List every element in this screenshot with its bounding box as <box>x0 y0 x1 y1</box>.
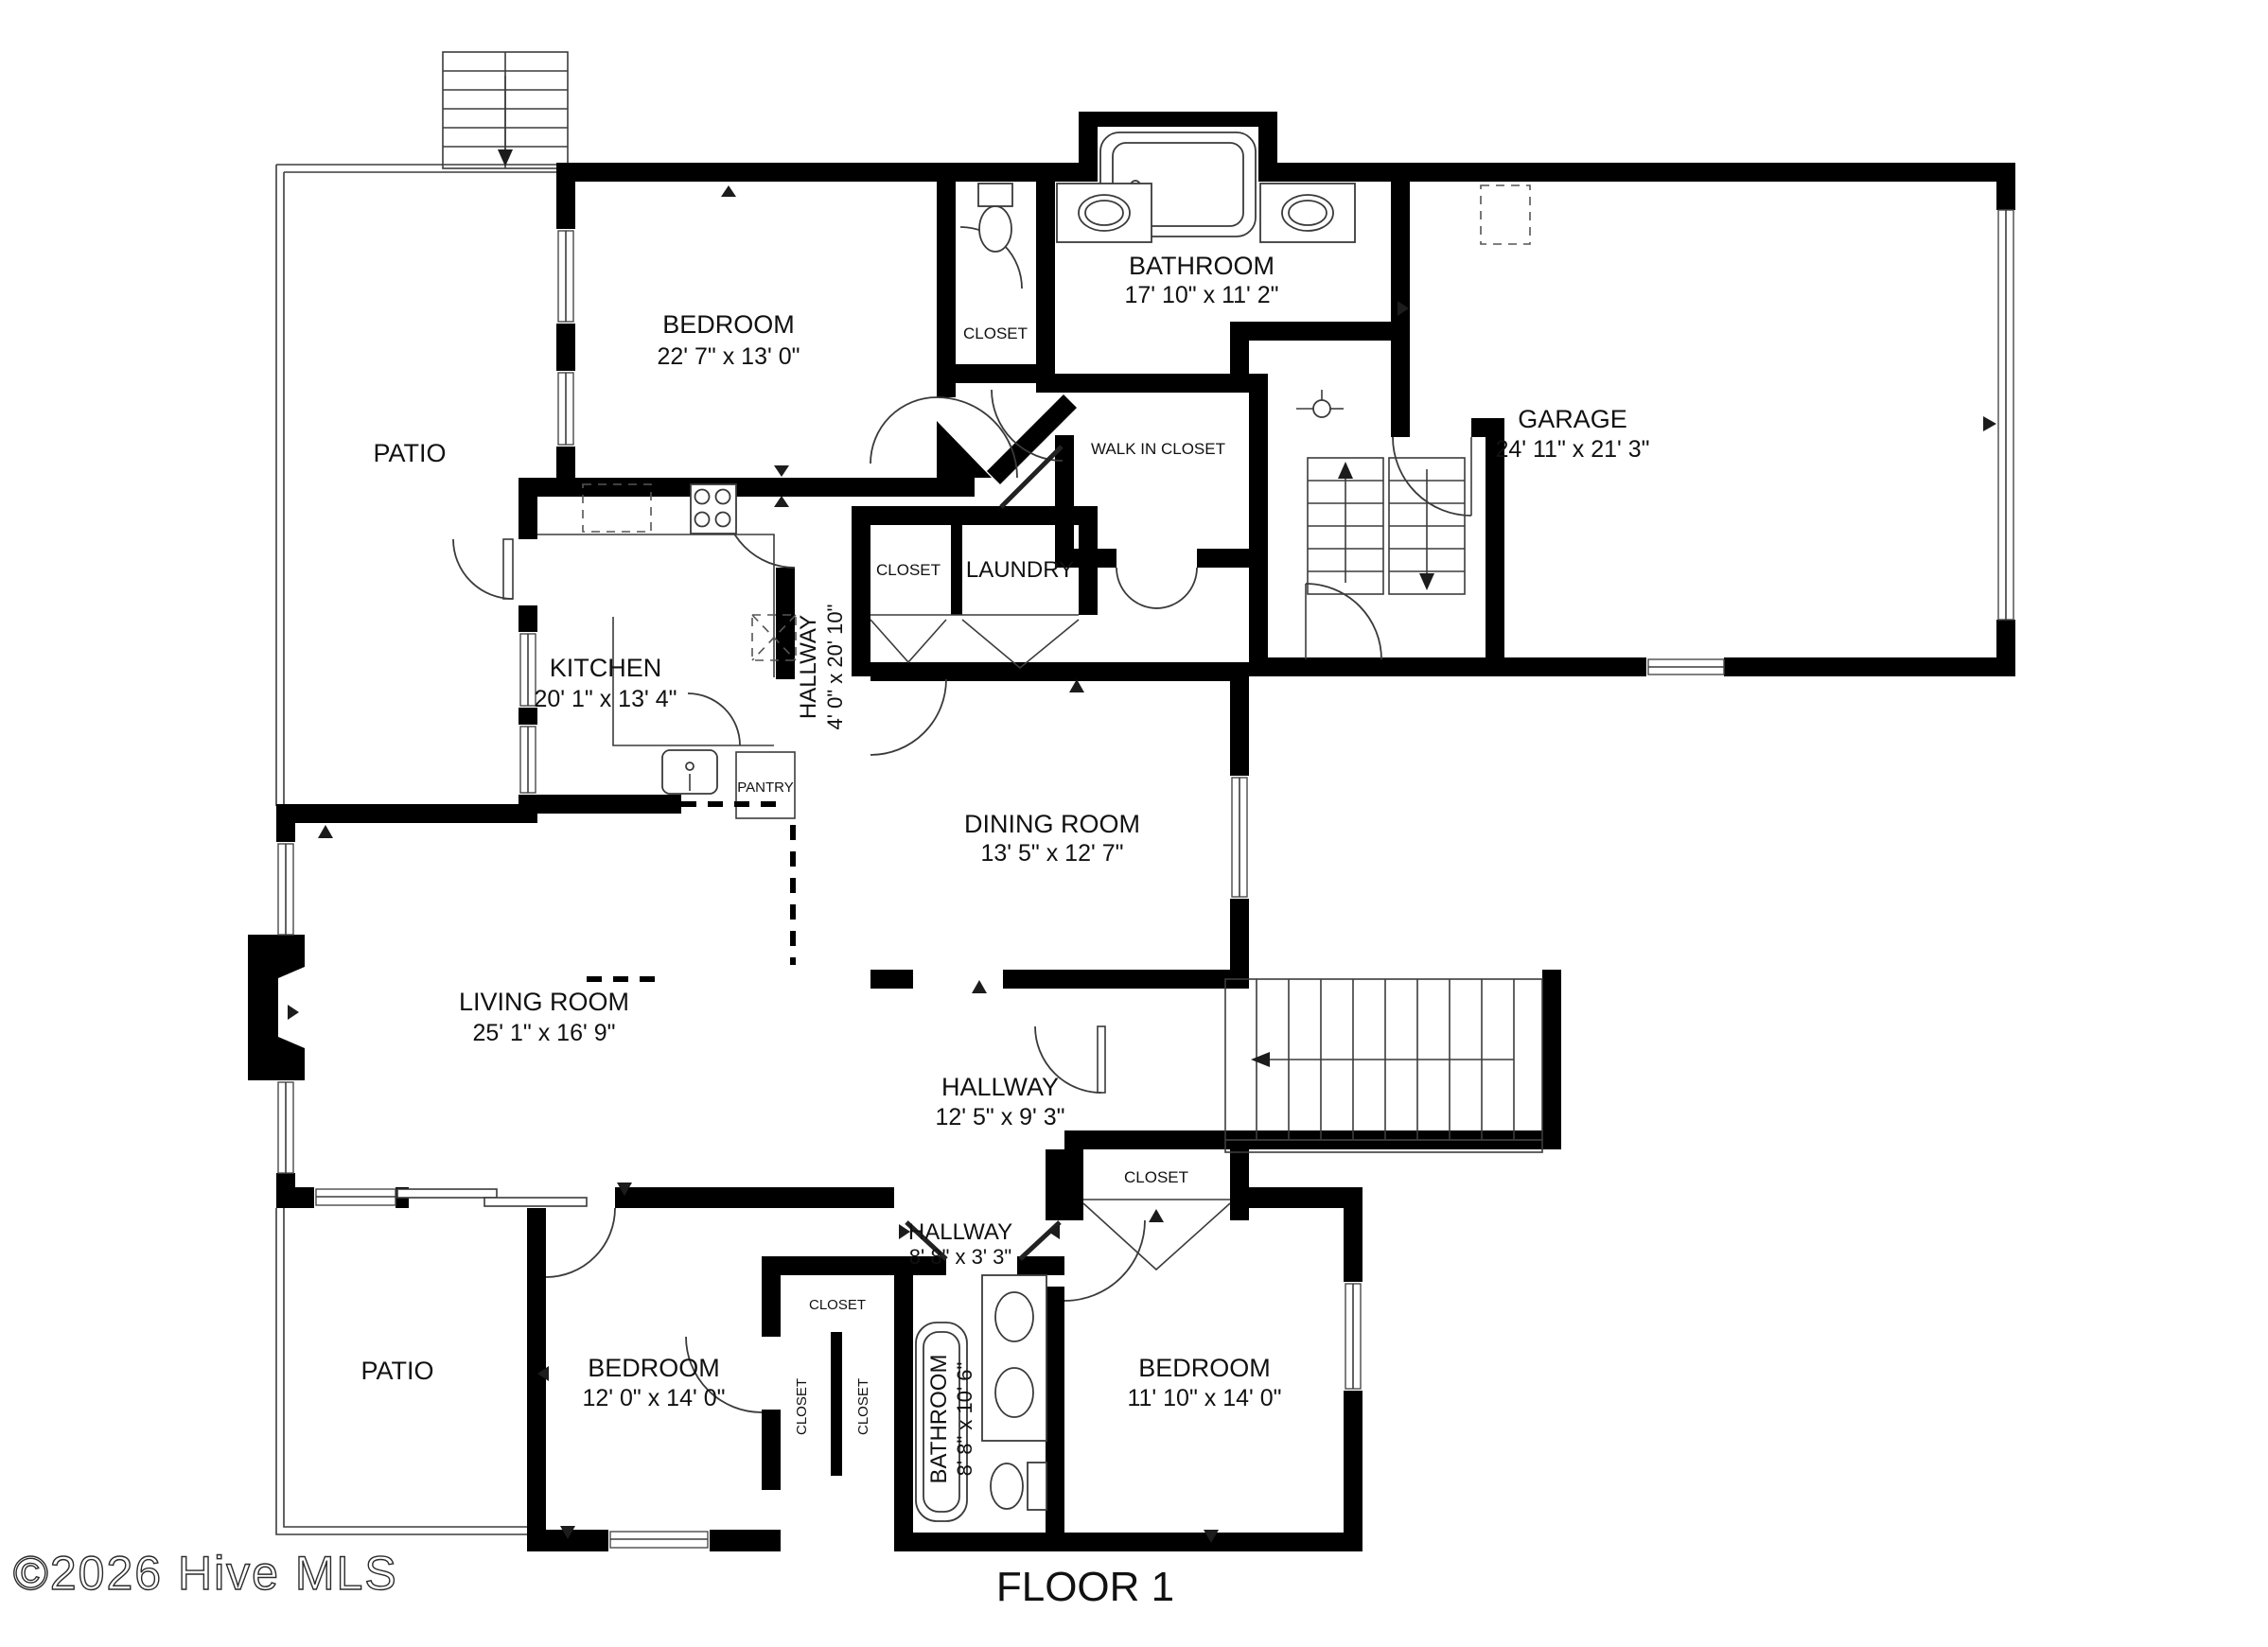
label-laundry: LAUNDRY <box>966 557 1074 583</box>
door-leaf <box>503 539 513 599</box>
window <box>278 1082 293 1173</box>
label-dining-room: DINING ROOM <box>964 810 1140 838</box>
dims-dining-room: 13' 5" x 12' 7" <box>980 840 1123 867</box>
label-closet-bl-top: CLOSET <box>809 1297 866 1313</box>
label-patio-top: PATIO <box>373 439 446 467</box>
dims-garage: 24' 11" x 21' 3" <box>1495 436 1649 463</box>
label-closet-laundry: CLOSET <box>876 561 941 579</box>
sink-left <box>1057 184 1152 242</box>
watermark: ©2026 Hive MLS <box>13 1547 398 1600</box>
label-bathroom-bottom: BATHROOM <box>926 1355 952 1484</box>
label-bedroom-top: BEDROOM <box>662 310 795 339</box>
faucet-glyph <box>1296 390 1344 417</box>
window <box>558 231 573 322</box>
bifold-door <box>962 620 1079 668</box>
patio-outlines <box>276 165 556 1534</box>
kitchen-sink <box>662 750 717 794</box>
dims-living-room: 25' 1" x 16' 9" <box>472 1020 615 1046</box>
label-hallway-center: HALLWAY <box>941 1073 1059 1101</box>
door-leaf <box>1098 1026 1105 1093</box>
open-boundaries <box>587 804 793 979</box>
stove <box>691 484 736 534</box>
sliding-door-panel <box>484 1198 587 1206</box>
label-closet-bl-right: CLOSET <box>855 1378 871 1435</box>
label-bathroom-top: BATHROOM <box>1129 252 1275 280</box>
dims-bathroom-bottom: 8' 8" x 10' 6" <box>953 1362 976 1477</box>
label-closet-bl-left: CLOSET <box>794 1378 810 1435</box>
floor-plan-drawing: PATIO BEDROOM 22' 7" x 13' 0" CLOSET BAT… <box>0 0 2268 1647</box>
dims-kitchen: 20' 1" x 13' 4" <box>534 686 677 712</box>
vanity-double <box>982 1275 1046 1441</box>
dims-bathroom-top: 17' 10" x 11' 2" <box>1124 282 1278 308</box>
label-living-room: LIVING ROOM <box>459 988 629 1016</box>
window <box>316 1189 396 1205</box>
label-hallway-main: HALLWAY <box>796 615 821 719</box>
toilet-bottom <box>991 1463 1046 1510</box>
floor-title: FLOOR 1 <box>996 1564 1174 1610</box>
window <box>278 844 293 935</box>
label-garage: GARAGE <box>1518 405 1627 433</box>
sink-right <box>1260 184 1355 242</box>
label-pantry: PANTRY <box>737 780 793 796</box>
label-walk-in-closet: WALK IN CLOSET <box>1091 440 1225 458</box>
label-bedroom-right: BEDROOM <box>1138 1354 1271 1382</box>
window <box>1345 1284 1361 1389</box>
stairs-main <box>1225 979 1542 1152</box>
window <box>1648 659 1724 675</box>
label-patio-bottom: PATIO <box>360 1357 433 1385</box>
dims-hallway-main: 4' 0" x 20' 10" <box>823 604 847 730</box>
stairs-mid <box>1308 458 1465 594</box>
door-leaf-diagonal <box>1020 1222 1060 1259</box>
window <box>520 727 536 793</box>
label-bedroom-left: BEDROOM <box>588 1354 720 1382</box>
sliding-door-panel <box>397 1189 497 1198</box>
bifold-door <box>870 620 946 662</box>
exterior-stairs <box>443 52 568 168</box>
floor-plan-page: PATIO BEDROOM 22' 7" x 13' 0" CLOSET BAT… <box>0 0 2268 1647</box>
dims-hallway-south: 8' 8" x 3' 3" <box>909 1245 1011 1269</box>
dims-bedroom-left: 12' 0" x 14' 0" <box>582 1385 725 1411</box>
water-heater-dashed <box>1481 185 1530 244</box>
window <box>610 1532 708 1548</box>
window <box>558 373 573 445</box>
label-kitchen: KITCHEN <box>550 654 662 682</box>
dims-bedroom-right: 11' 10" x 14' 0" <box>1127 1385 1281 1411</box>
dims-hallway-center: 12' 5" x 9' 3" <box>935 1104 1064 1130</box>
label-hallway-south: HALLWAY <box>908 1219 1012 1245</box>
label-closet-stairs: CLOSET <box>1124 1168 1188 1186</box>
garage-door <box>1998 210 2013 620</box>
window <box>1232 778 1247 897</box>
dims-bedroom-top: 22' 7" x 13' 0" <box>657 343 800 370</box>
label-closet-top: CLOSET <box>963 324 1028 342</box>
toilet-top <box>978 184 1012 252</box>
